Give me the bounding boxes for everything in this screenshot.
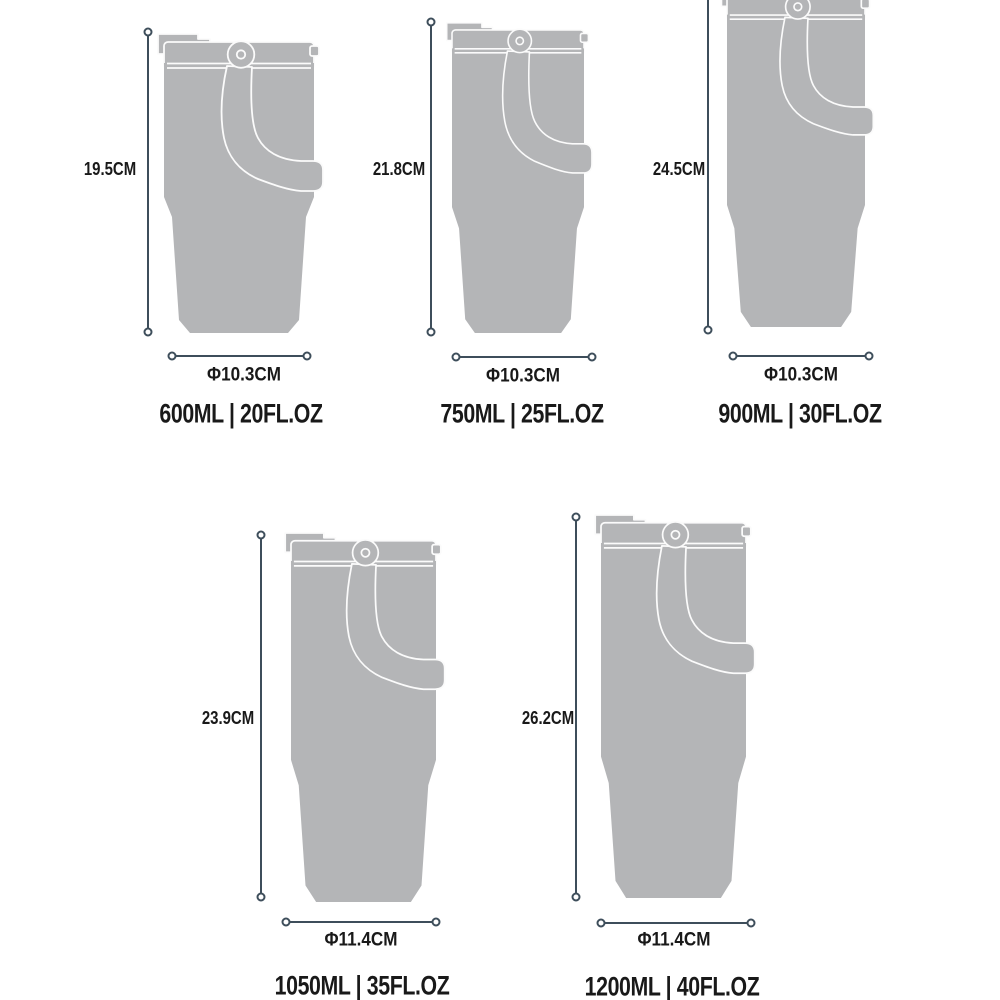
size-chart-canvas: 19.5CM Φ10.3CM 600ML | 20FL.OZ 21.8CM Φ1… — [0, 0, 1000, 1000]
dimension-endpoint-icon — [144, 328, 153, 337]
capacity-label: 600ML | 20FL.OZ — [159, 401, 322, 428]
dimension-endpoint-icon — [144, 28, 153, 37]
dimension-endpoint-icon — [588, 353, 597, 362]
diameter-dimension-line — [290, 921, 432, 923]
height-label: 26.2CM — [522, 709, 574, 727]
dimension-endpoint-icon — [729, 352, 738, 361]
dimension-endpoint-icon — [597, 919, 606, 928]
tumbler-illustration — [713, 0, 881, 331]
tumbler-600ml-group: 19.5CM Φ10.3CM 600ML | 20FL.OZ — [0, 0, 1000, 1000]
diameter-dimension-line — [460, 356, 588, 358]
dimension-endpoint-icon — [452, 353, 461, 362]
height-dimension-line — [707, 0, 709, 326]
dimension-endpoint-icon — [168, 352, 177, 361]
dimension-endpoint-icon — [572, 893, 581, 902]
capacity-label: 750ML | 25FL.OZ — [440, 401, 603, 428]
diameter-dimension-line — [737, 355, 865, 357]
dimension-endpoint-icon — [572, 513, 581, 522]
height-dimension-line — [147, 36, 149, 328]
height-label: 24.5CM — [653, 160, 705, 178]
capacity-label: 900ML | 30FL.OZ — [718, 401, 881, 428]
dimension-endpoint-icon — [257, 531, 266, 540]
tumbler-750ml-group: 21.8CM Φ10.3CM 750ML | 25FL.OZ — [0, 0, 1000, 1000]
diameter-label: Φ11.4CM — [325, 931, 398, 950]
tumbler-illustration — [277, 530, 452, 906]
dimension-endpoint-icon — [427, 328, 436, 337]
dimension-endpoint-icon — [427, 18, 436, 27]
height-dimension-line — [430, 26, 432, 328]
height-dimension-line — [260, 539, 262, 893]
dimension-endpoint-icon — [432, 918, 441, 927]
diameter-label: Φ11.4CM — [638, 931, 711, 950]
diameter-label: Φ10.3CM — [207, 366, 281, 385]
diameter-label: Φ10.3CM — [486, 367, 560, 386]
tumbler-illustration — [587, 512, 762, 902]
dimension-endpoint-icon — [747, 919, 756, 928]
height-label: 19.5CM — [84, 160, 136, 178]
tumbler-900ml-group: 24.5CM Φ10.3CM 900ML | 30FL.OZ — [0, 0, 1000, 1000]
tumbler-illustration — [150, 31, 330, 337]
tumbler-1200ml-group: 26.2CM Φ11.4CM 1200ML | 40FL.OZ — [0, 0, 1000, 1000]
height-label: 21.8CM — [373, 160, 425, 178]
diameter-dimension-line — [605, 922, 747, 924]
capacity-label: 1050ML | 35FL.OZ — [275, 973, 450, 1000]
height-dimension-line — [575, 521, 577, 893]
capacity-label: 1200ML | 40FL.OZ — [585, 974, 760, 1000]
dimension-endpoint-icon — [257, 893, 266, 902]
tumbler-1050ml-group: 23.9CM Φ11.4CM 1050ML | 35FL.OZ — [0, 0, 1000, 1000]
diameter-dimension-line — [176, 355, 303, 357]
dimension-endpoint-icon — [303, 352, 312, 361]
tumbler-illustration — [438, 20, 600, 337]
dimension-endpoint-icon — [282, 918, 291, 927]
dimension-endpoint-icon — [704, 326, 713, 335]
height-label: 23.9CM — [202, 709, 254, 727]
dimension-endpoint-icon — [865, 352, 874, 361]
diameter-label: Φ10.3CM — [764, 366, 838, 385]
